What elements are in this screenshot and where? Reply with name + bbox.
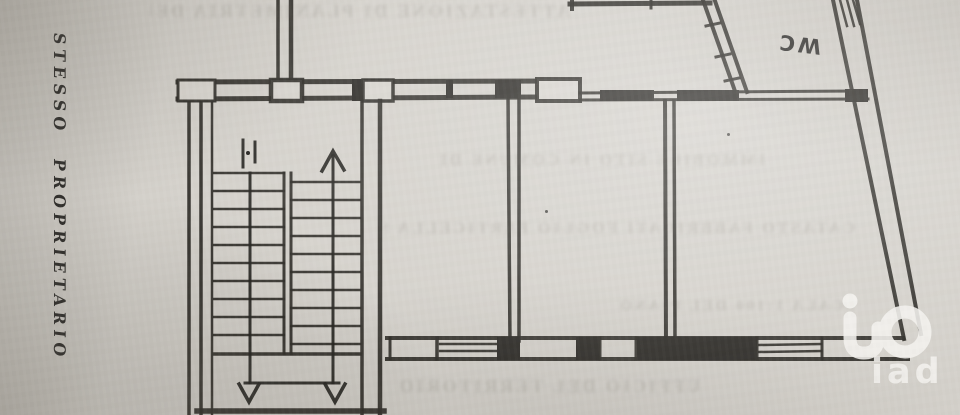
upper-right-room <box>570 0 747 94</box>
owner-annotation: STESSO PROPRIETARIO <box>50 32 69 354</box>
scan-speck <box>727 133 730 136</box>
wall-pier <box>497 337 520 360</box>
window-lines <box>759 344 821 345</box>
wall-junction-box <box>271 80 302 101</box>
bleed-through-text: IMMOBILE SITO IN COMUNE DI <box>385 152 765 170</box>
floor-plan-scan: STESSO PROPRIETARIO WC ATTESTAZIONE DI P… <box>0 0 960 415</box>
wall-pier <box>446 80 453 98</box>
iad-watermark: iad <box>827 288 957 408</box>
floor-plan-drawing <box>0 0 960 415</box>
window-lines <box>759 351 821 352</box>
door-opening <box>537 79 580 101</box>
wall-hatch <box>840 0 847 26</box>
bleed-through-text: UFFICIO DEL TERRITORIO <box>360 376 700 397</box>
wall-to-wc <box>580 89 868 102</box>
window-opening <box>363 80 393 101</box>
partition-wall-left <box>508 96 519 341</box>
wall-pier <box>576 337 600 360</box>
iad-logo-text: iad <box>871 352 957 392</box>
wall-pier <box>637 337 757 360</box>
bleed-through-text: ATTESTAZIONE DI PLANIMETRIA DEL PIANO <box>150 1 570 22</box>
down-arrowhead <box>325 384 345 402</box>
scan-speck <box>545 210 548 213</box>
bleed-through-text: SCALA 1:100 DEL PIANO <box>555 298 855 315</box>
wall-end-cap <box>178 80 215 101</box>
stairwell-walls <box>189 101 384 415</box>
bleed-through-text: CATASTO FABBRICATI FOGLIO PARTICELLA SUB <box>385 220 855 238</box>
down-arrowhead <box>239 384 259 402</box>
staircase <box>214 173 360 354</box>
